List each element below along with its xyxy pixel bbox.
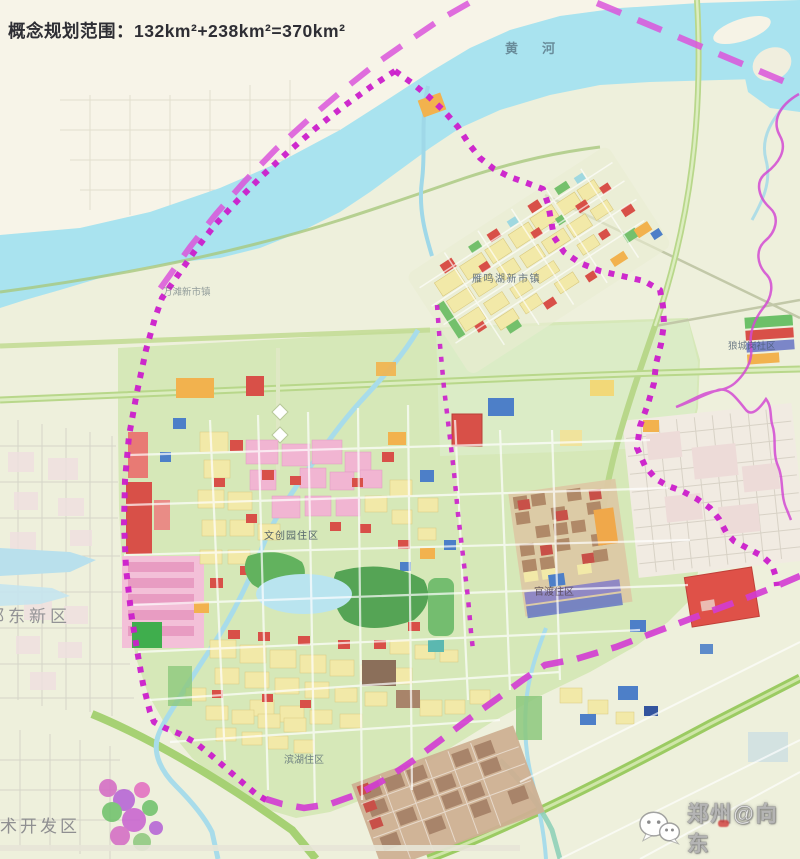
label-west-region: 郑东新区 <box>0 602 71 627</box>
label-central-district: 文创园住区 <box>264 527 319 542</box>
label-north-town: 雁鸣湖新市镇 <box>472 270 541 285</box>
page-title: 概念规划范围：132km²+238km²=370km² <box>8 18 345 43</box>
central-lake <box>256 574 352 614</box>
label-yellow-river: 黄河 <box>505 38 579 57</box>
map-canvas <box>0 0 800 859</box>
label-southwest-region: 术开发区 <box>0 812 80 837</box>
parcel <box>618 686 638 700</box>
label-west-town: 万滩新市镇 <box>163 284 211 298</box>
parcel <box>580 714 596 725</box>
wechat-icon <box>638 810 681 846</box>
label-east-district: 官渡住区 <box>534 583 574 598</box>
watermark-text: 郑州@向东 <box>687 798 800 858</box>
watermark: 郑州@向东 <box>638 798 800 858</box>
label-south-district: 滨湖住区 <box>284 751 324 766</box>
label-east-community: 狼城岗社区 <box>728 338 776 352</box>
watermark-red-mark <box>718 820 729 827</box>
parcel <box>516 696 542 740</box>
parcel <box>748 732 788 762</box>
planning-map-screenshot: 概念规划范围：132km²+238km²=370km² 黄河 雁鸣湖新市镇 万滩… <box>0 0 800 859</box>
